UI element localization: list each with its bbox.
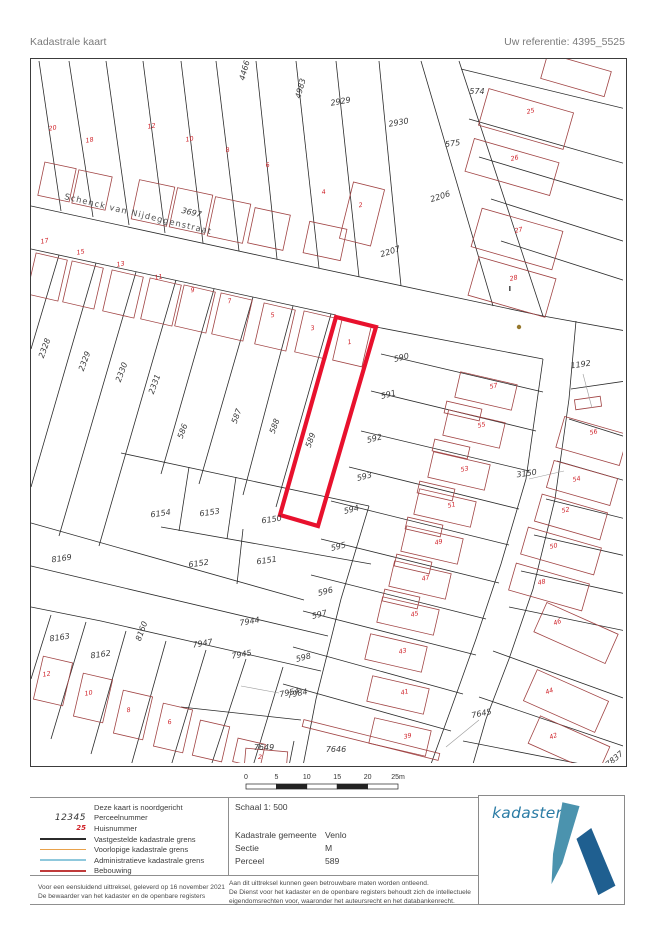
parcel-boundary-line [276,314,331,507]
parcel-number-label: 8163 [49,632,70,644]
parcel-boundary-line [181,707,301,720]
scale-bar: 0510152025m [243,770,413,796]
map-dot-mark [517,325,521,329]
kadaster-logo-icon [539,802,617,900]
building-outline [523,670,608,733]
building-outline [367,676,429,714]
scale-tick-label: 20 [364,774,372,781]
scale-bar-svg: 0510152025m [243,770,413,796]
parcel-boundary-line [59,272,136,536]
house-number-label: 44 [545,687,555,696]
parcel-number-label: 8169 [51,553,72,565]
scale-tick-label: 15 [333,774,341,781]
house-number-label: 8 [225,147,230,155]
parcel-boundary-line [534,535,623,556]
building-outline [417,481,455,501]
building-outline [455,372,517,410]
parcel-boundary-line [227,477,236,539]
parcel-number-label: 586 [176,422,190,439]
parcel-boundary-line [143,61,165,233]
house-number-label: 2 [258,754,262,761]
house-number-label: 57 [489,382,498,391]
parcel-boundary-line [131,641,166,763]
parcel-number-label: 2329 [77,350,92,372]
parcel-number-label: 7837 [604,749,623,763]
legend-swatch [36,849,94,851]
house-number-label: 28 [509,274,518,283]
parcel-number-label: 3697 [181,206,204,220]
divider-vertical [228,797,229,875]
building-outline [444,401,482,421]
kadaster-map-page: Kadastrale kaart Uw referentie: 4395_552… [0,0,656,932]
house-number-label: 7 [227,298,232,306]
parcel-number-label: 6152 [188,558,209,570]
house-number-label: 39 [403,732,412,741]
parcel-boundary-line [106,61,129,225]
building-outline [339,182,384,246]
parcel-boundary-line [493,651,623,699]
house-number-label: 54 [572,475,581,484]
parcel-number-label: 6154 [150,508,171,520]
parcel-number-label: 7649 [254,743,274,752]
parcel-number-label: 575 [444,138,460,149]
house-number-label: 56 [589,428,598,437]
building-outline [303,221,347,260]
scale-bar-segment [276,784,306,789]
legend-line-swatch [40,838,86,840]
house-number-label: 26 [510,154,519,163]
info-key: Perceel [235,856,325,869]
legend-label: Voorlopige kadastrale grens [94,845,188,854]
parcel-number-label: 2330 [114,361,129,383]
legend-item: Voorlopige kadastrale grens [36,844,226,855]
parcel-boundary-line [491,199,623,242]
kadaster-logo-box: kadaster [478,795,625,905]
info-row: Kadastrale gemeenteVenlo [235,830,465,843]
building-outline [443,410,505,448]
house-number-label: 9 [190,287,195,295]
map-svg: Schenck van Nijdeggenstraat4466498329292… [31,59,623,763]
house-number-label: 18 [85,136,94,144]
cadastral-map: Schenck van Nijdeggenstraat4466498329292… [30,58,627,767]
parcel-boundary-line [243,306,293,495]
parcel-boundary-line [216,61,239,251]
building-outline [534,603,618,664]
footer-line: De Dienst voor het kadaster en de openba… [229,888,479,897]
parcel-number-label: 596 [317,585,334,597]
parcel-boundary-line [99,280,176,546]
parcel-number-label: 597 [311,608,329,621]
legend-line-swatch [40,870,86,872]
building-outline [113,690,152,740]
parcel-boundary-line [199,297,253,484]
parcel-boundary-line [39,61,61,211]
house-number-label: 25 [526,107,535,116]
parcel-boundary-line [479,157,623,201]
legend-swatch [36,870,94,872]
house-number-label: 2 [358,202,363,210]
scale-tick-label: 25m [391,774,405,781]
footer-line: De bewaarder van het kadaster en de open… [38,892,225,901]
legend-item: Vastgestelde kadastrale grens [36,834,226,845]
parcel-boundary-line [521,571,623,594]
parcel-boundary-line [459,61,543,316]
label-leader-line [241,686,279,693]
building-outline [248,208,291,251]
parcel-boundary-line [349,467,519,509]
info-value: M [325,843,332,856]
page-title: Kadastrale kaart [30,36,106,48]
legend-swatch [36,838,94,840]
scale-bar-segment [246,784,276,789]
building-outline [33,656,72,706]
highlighted-parcel-589 [280,317,376,526]
legend-house-sample: 25 [76,824,86,832]
house-number-label: 27 [514,226,523,235]
parcel-number-label: 7945 [231,648,253,660]
building-outline [478,89,573,150]
page-header: Kadastrale kaart Uw referentie: 4395_552… [30,36,625,48]
legend: Deze kaart is noordgericht12345Perceelnu… [36,802,226,876]
building-outline [377,597,439,635]
building-outline [31,253,67,301]
legend-label: Perceelnummer [94,813,148,822]
map-info: Schaal 1: 500 Kadastrale gemeenteVenloSe… [235,802,465,869]
parcel-number-label: 7947 [192,637,215,650]
info-key: Sectie [235,843,325,856]
legend-parcel-sample: 12345 [55,813,86,823]
parcel-number-label: 4466 [238,59,252,81]
parcel-number-label: 590 [393,351,410,363]
house-number-label: 49 [434,538,443,547]
legend-label: Vastgestelde kadastrale grens [94,835,196,844]
parcel-number-label: 7646 [326,745,346,754]
house-number-label: 10 [84,689,93,697]
legend-line-swatch [40,859,86,861]
house-number-label: 42 [549,732,559,741]
footer-right: Aan dit uittreksel kunnen geen betrouwba… [229,879,479,906]
building-outline [255,303,296,351]
parcel-boundary-line [501,241,623,281]
legend-label: Deze kaart is noordgericht [94,803,183,812]
footer-left: Voor een eensluidend uittreksel, gelever… [38,883,225,901]
info-value: Venlo [325,830,347,843]
building-outline [302,720,440,761]
legend-label: Bebouwing [94,866,132,875]
parcel-number-label: 2929 [330,95,352,107]
parcel-number-label: 587 [230,407,244,425]
house-number-label: 52 [561,506,570,515]
house-number-label: 10 [185,135,194,143]
parcel-number-label: 6151 [256,555,277,567]
legend-label: Administratieve kadastrale grens [94,856,204,865]
info-key: Kadastrale gemeente [235,830,325,843]
building-outline [365,634,427,672]
house-number-label: 53 [460,465,469,474]
building-outline [153,703,192,753]
building-outline [556,417,623,466]
parcel-boundary-line [543,316,623,331]
house-number-label: 11 [154,273,163,281]
scale-label: Schaal 1: 500 [235,802,465,812]
parcel-boundary-line [31,255,59,349]
parcel-boundary-line [431,359,543,763]
parcel-number-label: 7944 [239,615,261,627]
parcel-number-label: 589 [304,431,318,448]
house-number-label: 55 [477,421,486,430]
scale-tick-label: 0 [244,774,248,781]
house-number-label: 43 [398,647,407,656]
info-row: Perceel589 [235,856,465,869]
parcel-boundary-line [421,61,493,306]
legend-swatch: 25 [36,824,94,832]
parcel-number-label: 2331 [147,373,162,395]
parcel-boundary-line [336,61,359,277]
parcel-boundary-line [469,119,623,164]
parcel-number-label: 598 [295,651,312,663]
building-outline [428,452,490,490]
parcel-boundary-line [31,615,51,679]
house-number-label: 20 [48,124,57,132]
parcel-number-label: 1192 [570,359,591,371]
logo-diagonal-shape [576,828,615,895]
legend-label: Huisnummer [94,824,137,833]
house-number-label: 50 [549,542,558,551]
parcel-info-rows: Kadastrale gemeenteVenloSectieMPerceel58… [235,830,465,869]
house-number-label: 46 [553,618,563,627]
parcel-number-label: 592 [366,432,383,444]
house-number-label: 41 [400,688,409,697]
label-leader-line [583,374,592,408]
info-row: SectieM [235,843,465,856]
house-number-label: 8 [126,707,131,715]
parcel-number-label: 594 [343,503,360,515]
parcel-boundary-line [31,566,328,636]
house-number-label: 1 [347,339,352,347]
house-number-label: 12 [147,122,156,130]
house-number-label: 15 [76,248,85,256]
house-number-label: 51 [447,501,456,510]
footer-line: Voor een eensluidend uittreksel, gelever… [38,883,225,892]
house-number-label: 4 [321,189,326,197]
parcel-boundary-line [161,289,214,474]
parcel-boundary-line [571,381,623,389]
legend-line-swatch [40,849,86,851]
legend-swatch: 12345 [36,813,94,823]
legend-item: Administratieve kadastrale grens [36,855,226,866]
house-number-label: 12 [42,670,51,678]
house-number-label: 45 [410,610,419,619]
legend-item: 25Huisnummer [36,823,226,834]
parcel-number-label: 4983 [294,77,308,99]
parcel-number-label: 2328 [37,337,52,359]
reference-label: Uw referentie: 4395_5525 [504,36,625,48]
footer-line: Aan dit uittreksel kunnen geen betrouwba… [229,879,479,888]
parcel-number-label: 593 [356,470,373,482]
parcel-boundary-line [237,529,243,584]
building-outline [63,261,104,309]
house-number-label: 6 [167,719,172,727]
legend-item: 12345Perceelnummer [36,813,226,824]
parcel-boundary-line [179,467,189,531]
building-outline [141,278,182,326]
parcel-number-label: 7645 [471,707,493,720]
legend-swatch [36,859,94,861]
parcel-number-label: 2206 [429,189,451,204]
parcel-number-label: 588 [268,417,282,434]
parcel-boundary-line [463,741,591,763]
map-symbol-mark [509,286,511,291]
parcel-number-label: 591 [380,388,397,400]
parcel-number-label: 6153 [199,507,220,519]
parcel-boundary-line [361,431,529,471]
building-outline [103,270,144,318]
building-outline [212,293,253,341]
house-number-label: 5 [270,312,275,320]
parcel-boundary-line [289,741,294,763]
scale-bar-segment [307,784,337,789]
parcel-boundary-line [546,499,623,519]
house-number-label: 3 [310,325,315,333]
parcel-boundary-line [31,206,543,316]
scale-bar-segment [368,784,398,789]
parcel-number-label: 8162 [90,649,111,661]
house-number-label: 48 [537,578,546,587]
parcel-number-label: 2930 [388,116,410,128]
scale-bar-segment [337,784,367,789]
building-outline [574,396,601,410]
parcel-number-label: 574 [469,87,484,96]
parcel-number-label: 2207 [379,244,402,259]
parcel-boundary-line [283,684,451,731]
building-outline [207,197,251,244]
house-number-label: 13 [116,260,125,268]
parcel-boundary-line [256,61,277,259]
footer-line: eigendomsrechten voor, waaronder het aut… [229,897,479,906]
house-number-label: 17 [40,237,49,245]
parcel-number-label: 6150 [261,514,282,526]
scale-tick-label: 5 [274,774,278,781]
house-number-label: 47 [421,574,430,583]
building-outline [534,494,607,540]
house-number-label: 6 [265,162,270,170]
scale-tick-label: 10 [303,774,311,781]
logo-nib-shape [551,802,579,884]
legend-item: Deze kaart is noordgericht [36,802,226,813]
info-value: 589 [325,856,339,869]
legend-item: Bebouwing [36,866,226,877]
